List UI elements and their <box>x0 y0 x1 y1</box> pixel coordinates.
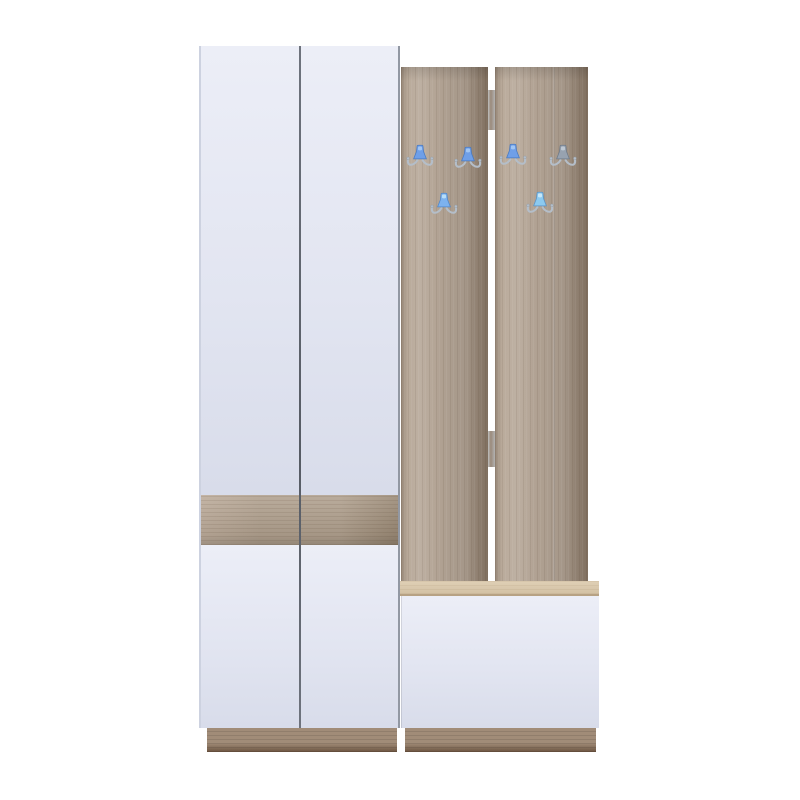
coat-hooks-group <box>0 0 800 800</box>
coat-hook-6 <box>523 191 557 219</box>
double-hook-icon <box>546 144 580 172</box>
coat-hook-1 <box>403 144 437 172</box>
double-hook-icon <box>427 192 461 220</box>
double-hook-icon <box>496 143 530 171</box>
double-hook-icon <box>403 144 437 172</box>
product-image-canvas <box>0 0 800 800</box>
double-hook-icon <box>451 146 485 174</box>
coat-hook-3 <box>496 143 530 171</box>
coat-hook-4 <box>546 144 580 172</box>
coat-hook-5 <box>427 192 461 220</box>
double-hook-icon <box>523 191 557 219</box>
coat-hook-2 <box>451 146 485 174</box>
